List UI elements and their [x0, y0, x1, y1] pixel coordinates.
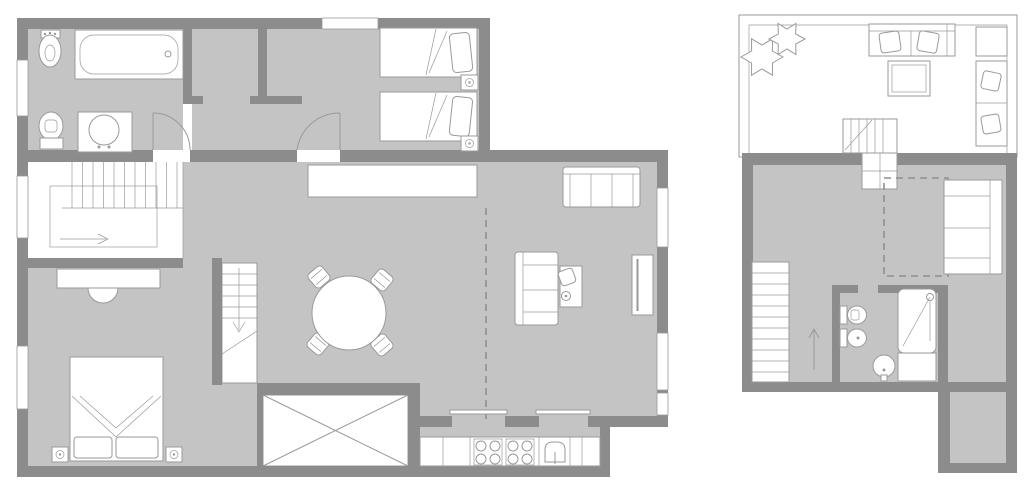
outdoor-sofa [869, 24, 955, 56]
window-top [322, 18, 378, 29]
pillow [74, 437, 112, 458]
bath-mat [898, 353, 936, 381]
wall-twin-bottom [340, 150, 479, 162]
window-master-bedroom [17, 346, 28, 409]
tv-unit [632, 255, 653, 315]
double-bed [70, 357, 163, 461]
three-seat-sofa [563, 167, 640, 207]
wall-void-left [257, 383, 263, 466]
stair-hall [28, 162, 183, 258]
pillow [116, 437, 158, 458]
wall-kitchen-stub-3 [588, 416, 610, 427]
toilet [39, 112, 63, 149]
window-living-3 [657, 393, 668, 415]
cushion [981, 114, 1002, 135]
two-seat-sofa [515, 252, 558, 325]
cushion [879, 31, 902, 54]
dining-set [305, 264, 394, 357]
wall-corridor-left [938, 392, 950, 463]
shower [898, 289, 936, 353]
window-stair-hall [17, 176, 28, 238]
wall-twin-right [479, 18, 490, 162]
wall-bedroom-right [212, 258, 222, 385]
window-living-1 [657, 188, 668, 247]
wall-bath-left [832, 285, 840, 382]
cushion [980, 70, 1001, 91]
wall-kitchen-stub-2 [505, 416, 539, 427]
wall-void-top [257, 383, 420, 395]
window-bathroom [17, 60, 28, 116]
twin-bed-1 [380, 28, 477, 77]
wall-bath-hall [183, 28, 192, 96]
sliding-door-leaf [536, 410, 590, 414]
floor-plan-image [0, 0, 1025, 500]
lounge-seats [976, 61, 1007, 146]
wall-hall-twin [258, 28, 267, 96]
upper-toilet [840, 306, 867, 324]
bidet [39, 30, 61, 67]
side-table [976, 27, 1007, 56]
wall-left [742, 153, 753, 392]
sliding-door-leaf [450, 410, 507, 414]
sideboard [308, 165, 477, 197]
upper-floor [739, 15, 1017, 473]
wall-hall-bottom [190, 150, 297, 162]
wall-top [17, 18, 490, 29]
wall-bath-hall-stub [183, 96, 203, 104]
wall-living-bottom [610, 416, 668, 427]
wall-right [1006, 153, 1017, 473]
nightstand-twin-2 [461, 136, 478, 151]
wall-hall-twin-stub [250, 96, 302, 104]
nightstand-master-left [52, 447, 68, 462]
entry-hall-floor [192, 28, 258, 150]
wall-bath-top-left [832, 285, 858, 293]
upper-bidet [840, 329, 867, 347]
pillow [449, 96, 473, 137]
washbasin [78, 112, 132, 152]
staircase-to-upper [222, 263, 257, 383]
daybed-sofa [944, 180, 1002, 274]
desk [557, 266, 582, 307]
void-open-space [263, 395, 408, 466]
wall-bedroom-top [28, 258, 183, 268]
wall-bottom [17, 466, 610, 477]
wall-living-top [479, 150, 668, 162]
pillow [449, 32, 473, 73]
wall-bath-right [938, 285, 948, 392]
nightstand-twin-1 [461, 75, 478, 90]
twin-bed-2 [380, 92, 477, 141]
coffee-table [888, 61, 930, 96]
corridor-floor [950, 392, 1006, 463]
kitchen-counter [420, 437, 600, 466]
wall-kitchen-stub-1 [410, 416, 452, 427]
cushion [916, 30, 939, 53]
floor-plan [0, 0, 1025, 500]
wall-bottom [742, 382, 1017, 392]
window-living-2 [657, 333, 668, 390]
dining-table [312, 276, 386, 350]
tap [881, 375, 887, 381]
bathtub [75, 30, 183, 79]
nightstand-master-right [166, 447, 182, 462]
lower-floor [17, 18, 668, 477]
wall-corridor-bottom [938, 463, 1017, 473]
